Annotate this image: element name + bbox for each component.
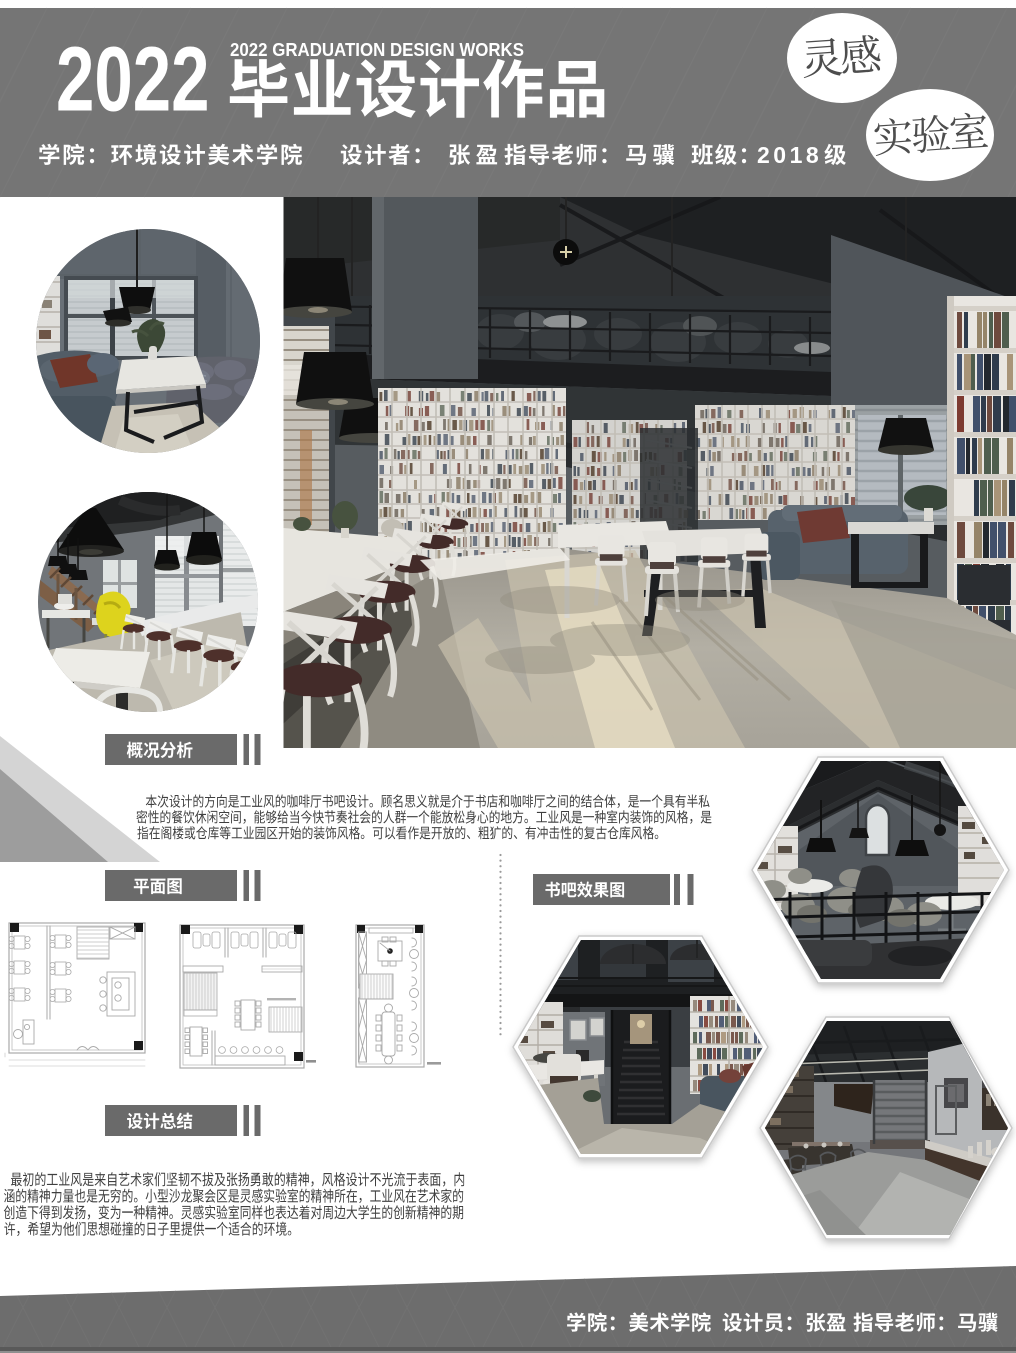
svg-text:2022: 2022 (56, 28, 209, 131)
svg-text:2018: 2018 (757, 142, 822, 168)
svg-text:2022 GRADUATION DESIGN WORKS: 2022 GRADUATION DESIGN WORKS (230, 40, 524, 60)
